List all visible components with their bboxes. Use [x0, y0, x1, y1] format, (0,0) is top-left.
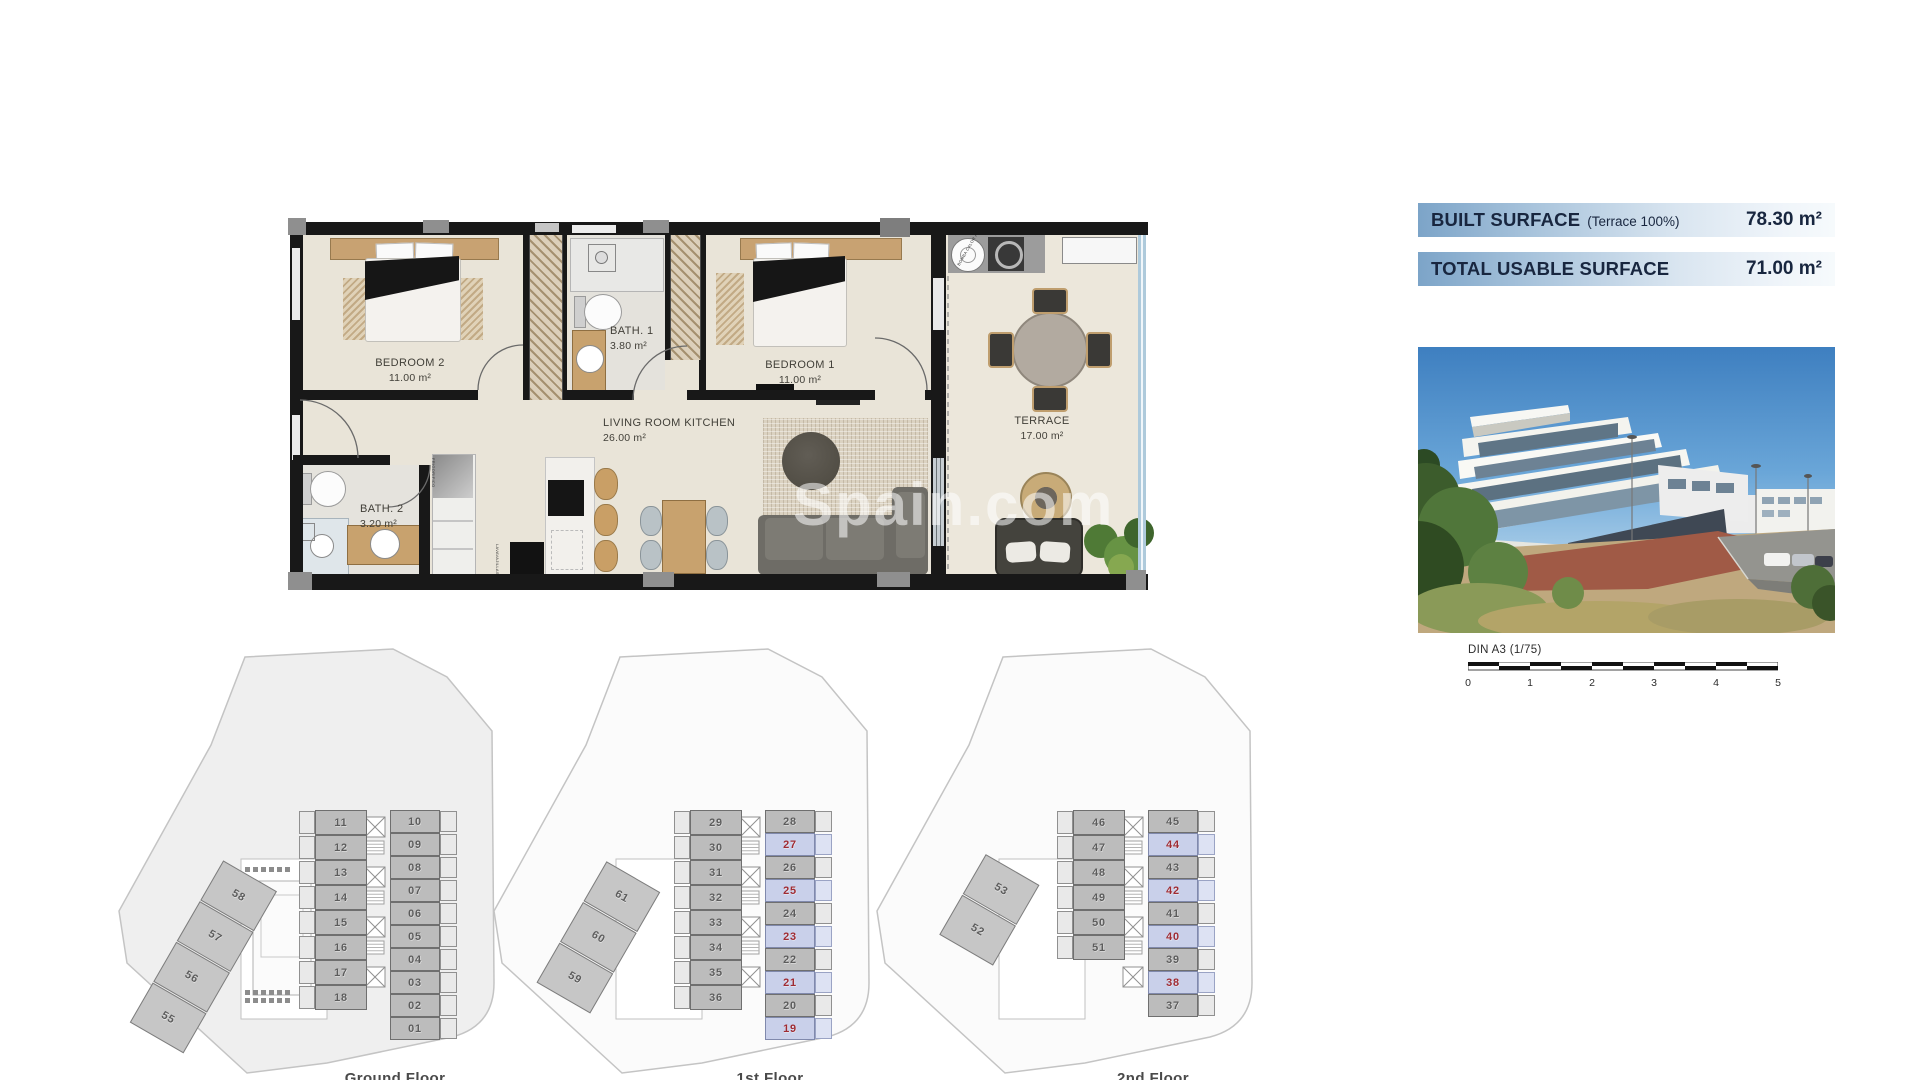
unit-box: 19 — [765, 1017, 815, 1040]
unit-balcony — [815, 949, 832, 970]
unit-balcony — [674, 986, 690, 1009]
unit-balcony — [1198, 903, 1215, 924]
bath2-label: BATH. 2 3.20 m² — [360, 502, 404, 531]
room-name: BEDROOM 1 — [740, 358, 860, 373]
unit-balcony — [674, 811, 690, 834]
floor-caption: 2nd Floor — [1023, 1070, 1283, 1080]
diagonal-units-group: 58575655 — [131, 860, 275, 1050]
unit-balcony — [440, 1018, 457, 1039]
unit-balcony — [815, 857, 832, 878]
unit-balcony — [1198, 857, 1215, 878]
building-photo — [1418, 347, 1835, 633]
unit-box: 38 — [1148, 971, 1198, 994]
unit-box: 51 — [1073, 935, 1125, 960]
scale-bar: DIN A3 (1/75) 012345 — [1468, 644, 1778, 690]
unit-balcony — [1057, 811, 1073, 834]
unit-balcony — [440, 995, 457, 1016]
unit-box: 43 — [1148, 856, 1198, 879]
room-name: TERRACE — [992, 414, 1092, 429]
unit-box: 26 — [765, 856, 815, 879]
unit-box: 42 — [1148, 879, 1198, 902]
unit-balcony — [1198, 995, 1215, 1016]
diagonal-units-group: 5352 — [940, 854, 1037, 963]
bedroom2-label: BEDROOM 2 11.00 m² — [350, 356, 470, 385]
unit-balcony — [440, 834, 457, 855]
scale-tick: 0 — [1465, 677, 1471, 689]
unit-box: 18 — [315, 985, 367, 1010]
unit-balcony — [674, 836, 690, 859]
scale-tick: 1 — [1527, 677, 1533, 689]
room-area: 3.20 m² — [360, 517, 404, 531]
room-name: LIVING ROOM KITCHEN — [603, 416, 735, 431]
unit-balcony — [1198, 880, 1215, 901]
built-surface-value: 78.30 m² — [1746, 209, 1822, 231]
unit-box: 28 — [765, 810, 815, 833]
unit-box: 15 — [315, 910, 367, 935]
unit-box: 11 — [315, 810, 367, 835]
room-name: BATH. 2 — [360, 502, 404, 517]
unit-balcony — [1198, 811, 1215, 832]
bedroom1-label: BEDROOM 1 11.00 m² — [740, 358, 860, 387]
unit-box: 08 — [390, 856, 440, 879]
usable-surface-label: TOTAL USABLE SURFACE — [1431, 258, 1669, 280]
unit-balcony — [1198, 926, 1215, 947]
unit-balcony — [815, 995, 832, 1016]
unit-box: 44 — [1148, 833, 1198, 856]
unit-box: 50 — [1073, 910, 1125, 935]
scale-tick: 2 — [1589, 677, 1595, 689]
unit-box: 07 — [390, 879, 440, 902]
scale-tick: 5 — [1775, 677, 1781, 689]
room-area: 3.80 m² — [610, 339, 654, 353]
unit-box: 49 — [1073, 885, 1125, 910]
built-surface-label: BUILT SURFACE — [1431, 209, 1580, 231]
unit-balcony — [1057, 911, 1073, 934]
unit-box: 27 — [765, 833, 815, 856]
unit-box: 14 — [315, 885, 367, 910]
floor-plan-mini-ground: 1112131415161718100908070605040302015857… — [95, 645, 525, 1080]
built-surface-box: BUILT SURFACE (Terrace 100%) 78.30 m² — [1418, 203, 1835, 237]
room-area: 11.00 m² — [740, 373, 860, 387]
unit-box: 09 — [390, 833, 440, 856]
unit-box: 16 — [315, 935, 367, 960]
unit-box: 10 — [390, 810, 440, 833]
floor-plan-mini-first: 2930313233343536282726252423222120196160… — [470, 645, 900, 1080]
unit-balcony — [674, 936, 690, 959]
unit-box: 21 — [765, 971, 815, 994]
unit-box: 23 — [765, 925, 815, 948]
unit-box: 46 — [1073, 810, 1125, 835]
unit-balcony — [440, 857, 457, 878]
unit-box: 25 — [765, 879, 815, 902]
unit-balcony — [299, 911, 315, 934]
unit-balcony — [815, 1018, 832, 1039]
unit-box: 03 — [390, 971, 440, 994]
unit-balcony — [674, 886, 690, 909]
unit-box: 04 — [390, 948, 440, 971]
unit-balcony — [440, 949, 457, 970]
unit-balcony — [440, 972, 457, 993]
unit-box: 06 — [390, 902, 440, 925]
unit-box: 24 — [765, 902, 815, 925]
unit-box: 22 — [765, 948, 815, 971]
unit-balcony — [299, 836, 315, 859]
living-label: LIVING ROOM KITCHEN 26.00 m² — [603, 416, 735, 445]
unit-balcony — [1198, 949, 1215, 970]
unit-balcony — [440, 926, 457, 947]
unit-balcony — [299, 986, 315, 1009]
watermark: Spain.com — [793, 470, 1114, 539]
unit-box: 34 — [690, 935, 742, 960]
unit-balcony — [1057, 861, 1073, 884]
diagonal-units-group: 616059 — [538, 861, 659, 1011]
unit-balcony — [299, 961, 315, 984]
unit-balcony — [815, 903, 832, 924]
unit-box: 29 — [690, 810, 742, 835]
usable-surface-box: TOTAL USABLE SURFACE 71.00 m² — [1418, 252, 1835, 286]
terrace-label: TERRACE 17.00 m² — [992, 414, 1092, 443]
unit-box: 45 — [1148, 810, 1198, 833]
unit-box: 05 — [390, 925, 440, 948]
unit-balcony — [440, 903, 457, 924]
unit-box: 36 — [690, 985, 742, 1010]
unit-balcony — [1057, 936, 1073, 959]
unit-box: 40 — [1148, 925, 1198, 948]
unit-balcony — [815, 880, 832, 901]
floor-plan-mini-second: 4647484950514544434241403938375352 2nd F… — [853, 645, 1283, 1080]
built-surface-note: (Terrace 100%) — [1587, 214, 1679, 229]
scale-tick: 3 — [1651, 677, 1657, 689]
unit-box: 41 — [1148, 902, 1198, 925]
unit-box: 39 — [1148, 948, 1198, 971]
room-area: 26.00 m² — [603, 431, 735, 445]
unit-balcony — [674, 911, 690, 934]
room-name: BEDROOM 2 — [350, 356, 470, 371]
unit-balcony — [299, 936, 315, 959]
scale-ticks: 012345 — [1468, 677, 1778, 690]
unit-balcony — [1057, 836, 1073, 859]
unit-box: 02 — [390, 994, 440, 1017]
room-area: 11.00 m² — [350, 371, 470, 385]
unit-box: 35 — [690, 960, 742, 985]
apartment-floor-plan: FRIGORIFICO LAVAVAJILLAS BOMBA CALOR ACS — [288, 218, 1148, 590]
unit-balcony — [815, 926, 832, 947]
unit-balcony — [1198, 834, 1215, 855]
unit-balcony — [815, 811, 832, 832]
unit-box: 33 — [690, 910, 742, 935]
unit-balcony — [299, 811, 315, 834]
units-layer: 4647484950514544434241403938375352 — [853, 645, 1283, 1080]
unit-box: 47 — [1073, 835, 1125, 860]
unit-box: 01 — [390, 1017, 440, 1040]
unit-box: 32 — [690, 885, 742, 910]
unit-balcony — [1198, 972, 1215, 993]
room-area: 17.00 m² — [992, 429, 1092, 443]
unit-balcony — [1057, 886, 1073, 909]
unit-box: 37 — [1148, 994, 1198, 1017]
unit-box: 31 — [690, 860, 742, 885]
scale-tick: 4 — [1713, 677, 1719, 689]
unit-balcony — [440, 811, 457, 832]
unit-box: 12 — [315, 835, 367, 860]
usable-surface-value: 71.00 m² — [1746, 258, 1822, 280]
unit-balcony — [440, 880, 457, 901]
bath1-label: BATH. 1 3.80 m² — [610, 324, 654, 353]
scale-label: DIN A3 (1/75) — [1468, 644, 1778, 656]
units-layer: 1112131415161718100908070605040302015857… — [95, 645, 525, 1080]
unit-balcony — [299, 886, 315, 909]
units-layer: 2930313233343536282726252423222120196160… — [470, 645, 900, 1080]
unit-balcony — [674, 861, 690, 884]
unit-balcony — [815, 972, 832, 993]
unit-balcony — [674, 961, 690, 984]
unit-box: 17 — [315, 960, 367, 985]
unit-box: 30 — [690, 835, 742, 860]
unit-box: 20 — [765, 994, 815, 1017]
brochure-page: FRIGORIFICO LAVAVAJILLAS BOMBA CALOR ACS — [0, 0, 1920, 1080]
unit-box: 13 — [315, 860, 367, 885]
unit-balcony — [299, 861, 315, 884]
scale-bar-graphic — [1468, 662, 1778, 671]
room-name: BATH. 1 — [610, 324, 654, 339]
unit-box: 48 — [1073, 860, 1125, 885]
unit-balcony — [815, 834, 832, 855]
